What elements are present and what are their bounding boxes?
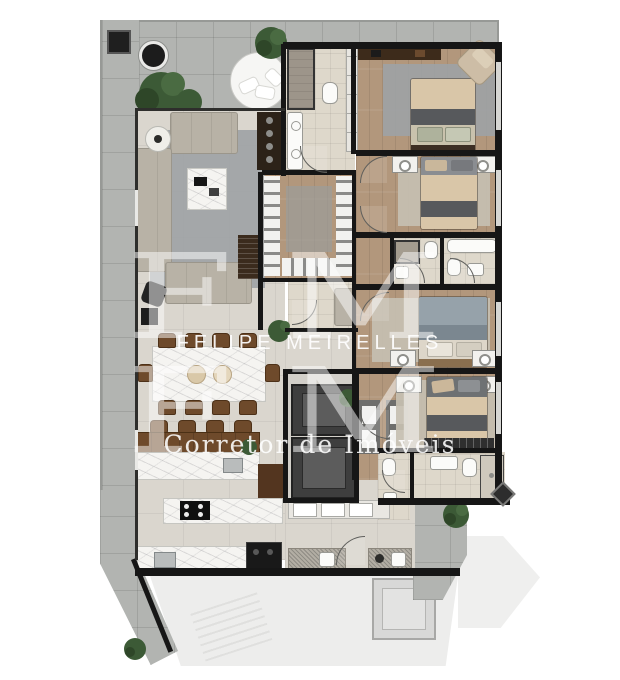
wall — [440, 238, 444, 284]
double-sink-counter — [287, 112, 303, 170]
wine-cabinet — [257, 112, 283, 170]
coffee-table — [187, 168, 227, 210]
glass-wall — [135, 108, 285, 111]
ottoman — [141, 308, 158, 325]
fire-table — [107, 30, 131, 54]
wall — [262, 278, 356, 282]
cabinet-run — [264, 176, 280, 276]
cooktop-counter — [163, 498, 283, 524]
service-counter — [368, 548, 412, 570]
range-oven — [246, 542, 282, 571]
sofa — [136, 148, 172, 272]
nightstand — [392, 156, 418, 173]
dining-table — [152, 346, 266, 402]
master-bed — [410, 78, 476, 154]
floor-plan-canvas: FM FELIPE MEIRELLES FM Corretor de Imóve… — [0, 0, 620, 680]
nightstand — [390, 350, 416, 367]
dining-chair — [212, 333, 230, 348]
toilet — [424, 241, 438, 259]
wall — [351, 44, 356, 154]
neighbor-unit-right — [458, 536, 540, 628]
elevator-core-wall — [283, 369, 359, 503]
island-counter — [136, 452, 260, 480]
window — [496, 62, 501, 130]
nightstand — [396, 376, 422, 393]
dining-chair — [185, 333, 203, 348]
toilet — [462, 458, 477, 477]
glass-door-gap — [135, 430, 138, 470]
dining-chair — [239, 400, 257, 415]
pantry-cabinet — [258, 464, 284, 498]
suite2-bed — [420, 156, 478, 230]
bath-counter — [430, 456, 458, 470]
wall — [390, 238, 394, 284]
cabinet-room-mat — [286, 186, 332, 252]
dining-chair — [265, 364, 280, 382]
wall — [378, 448, 497, 453]
dining-chair — [158, 333, 176, 348]
dining-chair — [239, 333, 257, 348]
wall — [410, 452, 414, 502]
wall — [283, 42, 501, 49]
shower — [287, 48, 315, 110]
wall — [258, 172, 263, 330]
glass-door-gap — [135, 190, 138, 226]
wall — [356, 232, 497, 238]
window — [496, 170, 501, 226]
wall — [262, 170, 356, 175]
wall — [378, 498, 510, 505]
bathtub — [447, 239, 497, 253]
dining-chair — [138, 364, 153, 382]
small-room-seat — [334, 288, 354, 326]
side-table-lamp — [145, 126, 171, 152]
plant-icon — [122, 636, 148, 662]
cabinet-run — [282, 258, 336, 276]
plant-icon — [240, 438, 258, 456]
wall — [285, 328, 358, 332]
window — [496, 382, 501, 434]
cooktop — [180, 501, 210, 520]
bar-cabinet — [238, 235, 260, 279]
dining-chair — [212, 400, 230, 415]
dining-chair — [185, 400, 203, 415]
cabinet-run — [336, 176, 352, 276]
glass-wall — [135, 108, 138, 560]
dining-chair — [158, 400, 176, 415]
wall — [356, 150, 497, 156]
island-sink — [223, 458, 243, 473]
wall — [356, 368, 497, 374]
window — [496, 302, 501, 356]
toilet — [322, 82, 338, 104]
wall — [356, 284, 497, 290]
sofa — [170, 112, 238, 154]
